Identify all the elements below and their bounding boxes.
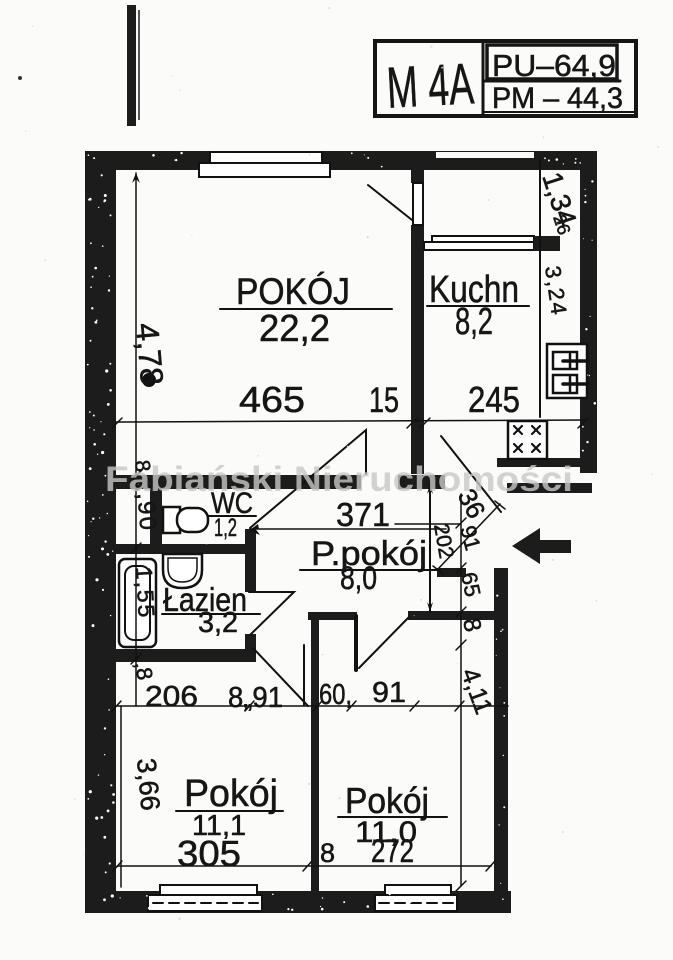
svg-text:60,: 60,: [319, 679, 352, 711]
svg-text:8„91: 8„91: [228, 682, 283, 714]
svg-text:245: 245: [468, 379, 520, 420]
svg-text:1,2: 1,2: [214, 514, 237, 542]
svg-text:22,2: 22,2: [259, 308, 330, 350]
svg-text:15: 15: [369, 381, 399, 420]
svg-text:1,55: 1,55: [131, 566, 160, 620]
svg-text:465: 465: [239, 379, 305, 420]
svg-text:65: 65: [456, 570, 486, 599]
svg-text:8: 8: [320, 838, 335, 868]
svg-text:M 4A: M 4A: [385, 51, 475, 120]
svg-text:4,78: 4,78: [129, 321, 170, 386]
svg-text:206: 206: [145, 681, 198, 713]
svg-text:Pokój: Pokój: [345, 780, 429, 821]
svg-text:Pokój: Pokój: [184, 773, 278, 815]
svg-text:Fabiański Nieruchomości: Fabiański Nieruchomości: [105, 460, 573, 499]
svg-text:11,0: 11,0: [355, 816, 417, 849]
svg-text:8,2: 8,2: [455, 301, 493, 343]
svg-text:8,0: 8,0: [340, 560, 377, 596]
svg-text:PM – 44,3: PM – 44,3: [492, 82, 623, 115]
svg-text:91: 91: [372, 677, 406, 709]
svg-text:11,1: 11,1: [192, 810, 246, 842]
svg-text:371: 371: [336, 496, 390, 533]
svg-text:PU–64,9: PU–64,9: [492, 48, 616, 83]
svg-text:3,66: 3,66: [131, 757, 165, 812]
svg-text:3,2: 3,2: [198, 607, 238, 639]
svg-text:POKÓJ: POKÓJ: [236, 271, 350, 312]
